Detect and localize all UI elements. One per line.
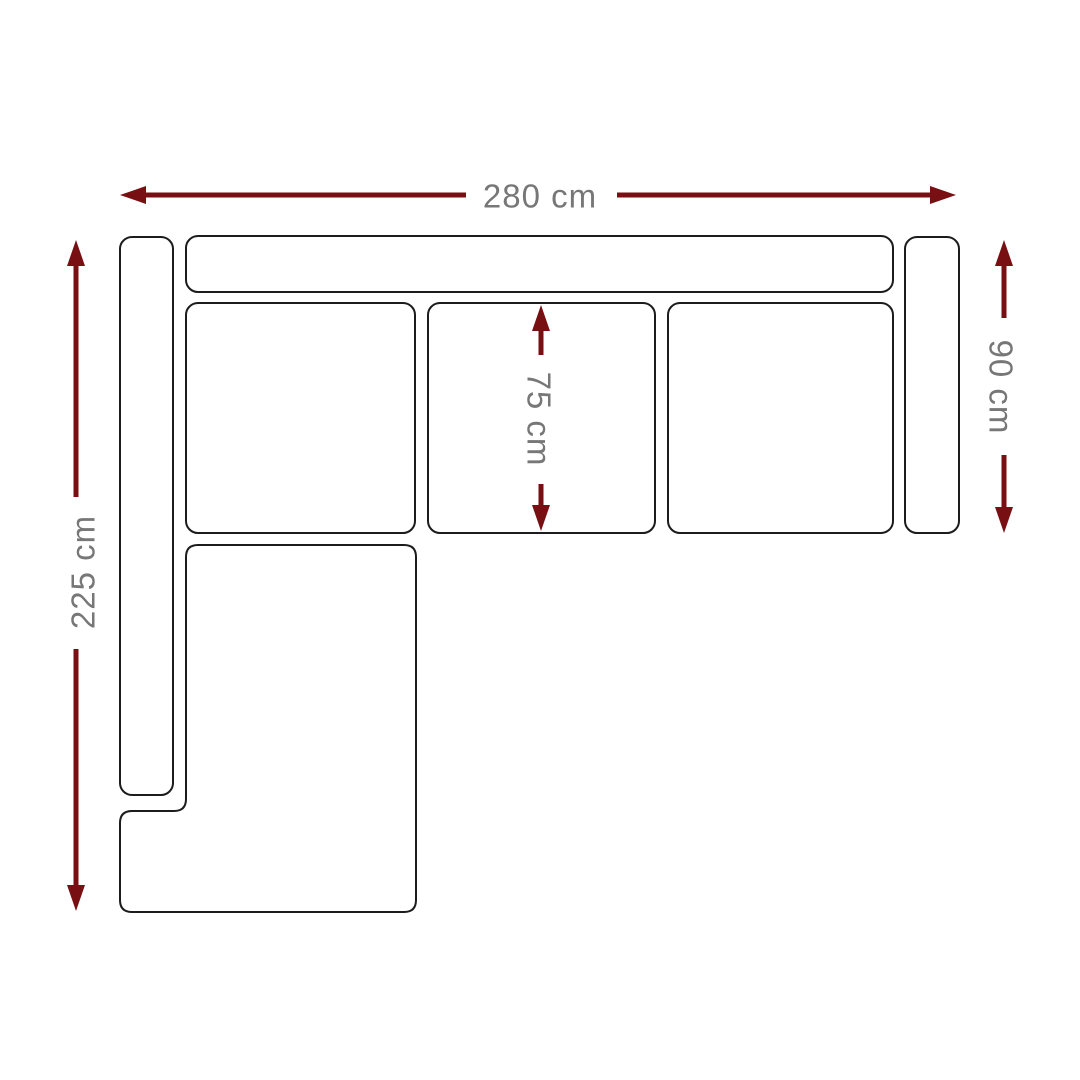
left-armrest	[120, 237, 173, 795]
arrow-shaft	[74, 649, 79, 886]
right-armrest	[905, 237, 959, 533]
arrow-shaft	[539, 484, 544, 507]
sofa-dimension-diagram: 280 cm 225 cm 90 cm 75 cm	[0, 0, 1080, 1080]
width-dimension-label: 280 cm	[483, 178, 597, 215]
arrowhead-up-icon	[67, 240, 85, 266]
seat-depth-dimension-label: 75 cm	[520, 372, 557, 467]
chaise-section	[120, 545, 416, 912]
backrest	[186, 236, 893, 292]
arrow-shaft	[1002, 455, 1007, 509]
arrowhead-right-icon	[930, 186, 956, 204]
seat-cushion-left	[186, 303, 415, 533]
depth-right-dimension-label: 90 cm	[982, 340, 1019, 435]
depth-left-dimension-label: 225 cm	[65, 515, 102, 629]
arrow-shaft	[539, 329, 544, 355]
arrow-shaft	[144, 193, 466, 198]
arrow-shaft	[1002, 264, 1007, 318]
diagram-canvas: 280 cm 225 cm 90 cm 75 cm	[0, 0, 1080, 1080]
arrowhead-down-icon	[532, 505, 550, 531]
arrow-shaft	[74, 264, 79, 497]
arrowhead-up-icon	[995, 240, 1013, 266]
arrow-shaft	[617, 193, 931, 198]
arrowhead-left-icon	[120, 186, 146, 204]
arrowhead-down-icon	[67, 885, 85, 911]
arrowhead-up-icon	[532, 305, 550, 331]
seat-cushion-right	[668, 303, 893, 533]
arrowhead-down-icon	[995, 507, 1013, 533]
